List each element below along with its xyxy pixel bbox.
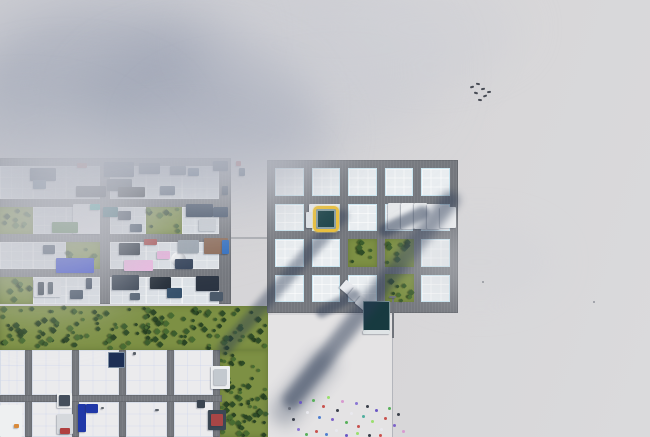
pedestrian: [384, 417, 387, 420]
building[interactable]: [363, 330, 390, 334]
pedestrian: [312, 399, 315, 402]
pedestrian: [297, 428, 300, 431]
pedestrian: [325, 433, 328, 436]
solar-panel[interactable]: [108, 352, 125, 368]
pedestrian: [299, 401, 302, 404]
pedestrian: [345, 421, 348, 424]
pedestrian: [393, 424, 396, 427]
pedestrian: [288, 407, 291, 410]
pedestrian: [380, 428, 383, 431]
zoned-lot[interactable]: [174, 350, 213, 395]
zoned-lot[interactable]: [0, 350, 25, 395]
pedestrian: [402, 430, 405, 433]
building[interactable]: [130, 293, 140, 300]
building[interactable]: [197, 400, 205, 408]
bird: [482, 281, 484, 283]
selection-marker[interactable]: [313, 206, 339, 232]
pedestrian: [305, 433, 308, 436]
building[interactable]: [155, 409, 159, 411]
pedestrian: [366, 405, 369, 408]
building[interactable]: [167, 288, 182, 298]
building[interactable]: [0, 405, 22, 437]
pedestrian: [371, 420, 374, 423]
blue-building[interactable]: [78, 404, 86, 432]
game-viewport[interactable]: [0, 0, 650, 437]
pedestrian: [306, 411, 309, 414]
road-surface[interactable]: [25, 350, 32, 437]
building[interactable]: [211, 414, 223, 426]
building[interactable]: [210, 292, 223, 301]
bird: [478, 99, 482, 101]
bird: [487, 91, 491, 93]
zoned-lot[interactable]: [348, 204, 377, 232]
zoned-lot[interactable]: [348, 168, 377, 196]
street-lamp: [392, 296, 394, 338]
pedestrian: [331, 418, 334, 421]
pedestrian: [327, 396, 330, 399]
pedestrian: [335, 429, 338, 432]
building[interactable]: [196, 276, 219, 291]
smoke-cloud: [405, 224, 555, 300]
zoned-lot[interactable]: [126, 402, 167, 437]
pedestrian: [341, 400, 344, 403]
road-surface[interactable]: [167, 350, 174, 437]
pedestrian: [375, 409, 378, 412]
pedestrian: [356, 432, 359, 435]
building[interactable]: [86, 404, 98, 413]
pedestrian: [292, 418, 295, 421]
building[interactable]: [157, 251, 170, 259]
building[interactable]: [14, 424, 19, 428]
pedestrian: [322, 405, 325, 408]
tree: [207, 343, 211, 347]
pedestrian: [397, 413, 400, 416]
pedestrian: [362, 415, 365, 418]
building[interactable]: [60, 428, 70, 434]
pedestrian: [388, 407, 391, 410]
building[interactable]: [175, 259, 193, 269]
building[interactable]: [214, 369, 227, 385]
pedestrian: [336, 409, 339, 412]
building[interactable]: [101, 407, 104, 409]
road-surface[interactable]: [0, 395, 222, 402]
zoned-lot[interactable]: [32, 350, 72, 395]
bird: [593, 301, 595, 303]
pedestrian: [315, 430, 318, 433]
pedestrian: [355, 402, 358, 405]
zoned-lot[interactable]: [385, 168, 414, 196]
pedestrian: [357, 425, 360, 428]
building[interactable]: [59, 395, 70, 406]
pedestrian: [318, 416, 321, 419]
building[interactable]: [133, 352, 136, 355]
building[interactable]: [389, 296, 396, 298]
zoned-lot[interactable]: [126, 350, 167, 395]
pedestrian: [350, 412, 353, 415]
